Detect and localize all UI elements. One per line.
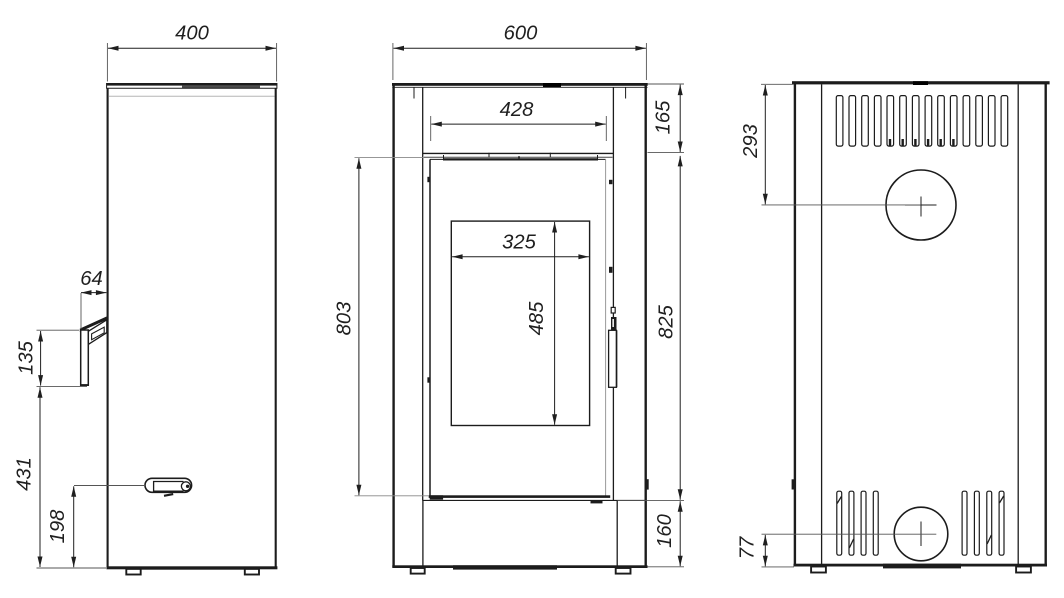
svg-text:135: 135 bbox=[16, 340, 38, 374]
svg-text:325: 325 bbox=[502, 232, 536, 254]
svg-text:803: 803 bbox=[334, 301, 356, 335]
svg-text:428: 428 bbox=[500, 99, 534, 121]
svg-text:160: 160 bbox=[654, 513, 676, 547]
svg-text:64: 64 bbox=[80, 268, 102, 290]
svg-text:77: 77 bbox=[737, 536, 759, 559]
svg-text:600: 600 bbox=[504, 23, 538, 45]
svg-text:198: 198 bbox=[47, 509, 69, 543]
svg-text:485: 485 bbox=[526, 301, 548, 335]
svg-text:431: 431 bbox=[14, 457, 36, 491]
svg-text:293: 293 bbox=[740, 123, 762, 158]
svg-text:825: 825 bbox=[656, 304, 678, 338]
svg-text:400: 400 bbox=[175, 23, 209, 45]
svg-text:165: 165 bbox=[653, 100, 675, 134]
